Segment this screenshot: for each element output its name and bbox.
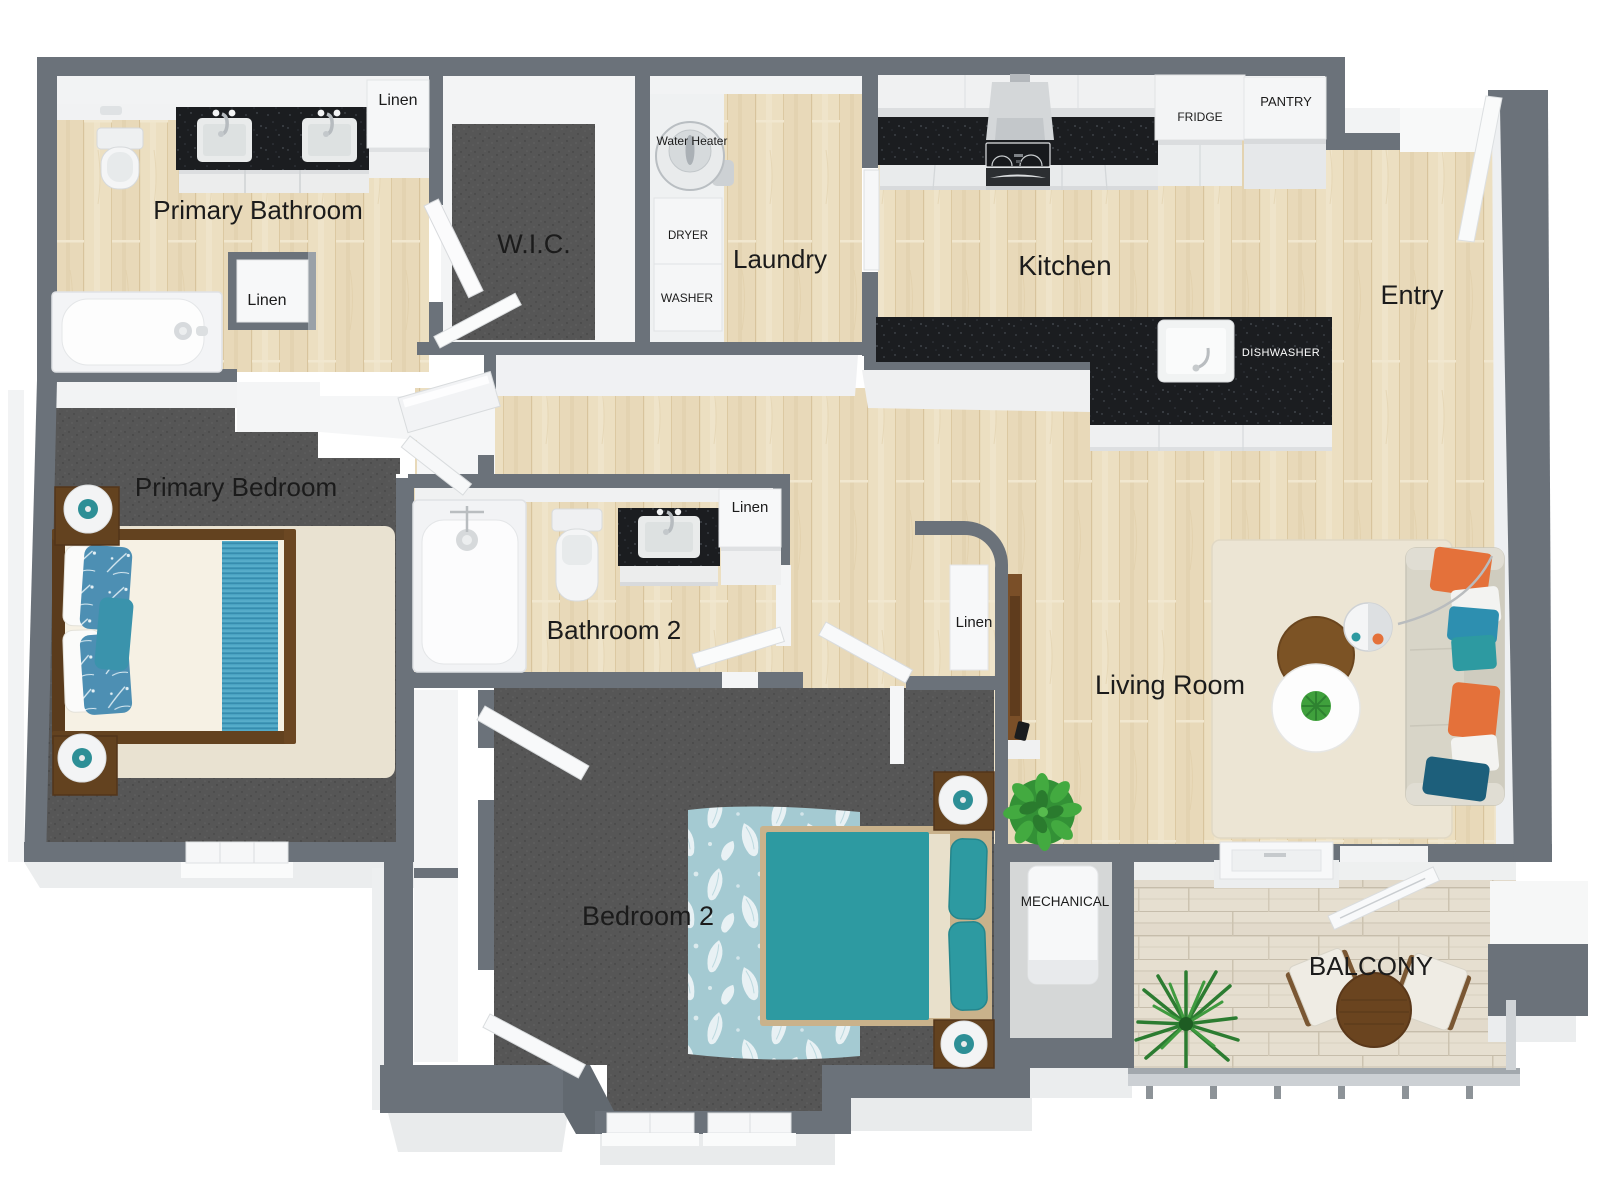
svg-text:WASHER: WASHER	[661, 291, 714, 305]
svg-text:PANTRY: PANTRY	[1260, 94, 1312, 109]
svg-text:Linen: Linen	[378, 92, 417, 109]
svg-text:Linen: Linen	[247, 292, 286, 309]
svg-text:Kitchen: Kitchen	[1018, 250, 1111, 281]
svg-text:Entry: Entry	[1380, 280, 1444, 310]
svg-text:Bedroom 2: Bedroom 2	[582, 901, 714, 931]
svg-text:DRYER: DRYER	[668, 230, 708, 242]
svg-text:W.I.C.: W.I.C.	[497, 229, 571, 259]
svg-text:Linen: Linen	[732, 499, 769, 516]
svg-text:DISHWASHER: DISHWASHER	[1242, 347, 1320, 359]
svg-text:Primary Bathroom: Primary Bathroom	[153, 195, 363, 225]
svg-text:Linen: Linen	[956, 614, 993, 631]
svg-text:Water Heater: Water Heater	[657, 134, 728, 148]
svg-text:Primary Bedroom: Primary Bedroom	[135, 472, 337, 502]
svg-text:FRIDGE: FRIDGE	[1177, 110, 1222, 124]
svg-text:Laundry: Laundry	[733, 244, 827, 274]
svg-text:BALCONY: BALCONY	[1309, 951, 1433, 981]
svg-text:Bathroom 2: Bathroom 2	[547, 615, 681, 645]
svg-text:MECHANICAL: MECHANICAL	[1021, 894, 1110, 909]
svg-text:Living Room: Living Room	[1095, 670, 1245, 700]
